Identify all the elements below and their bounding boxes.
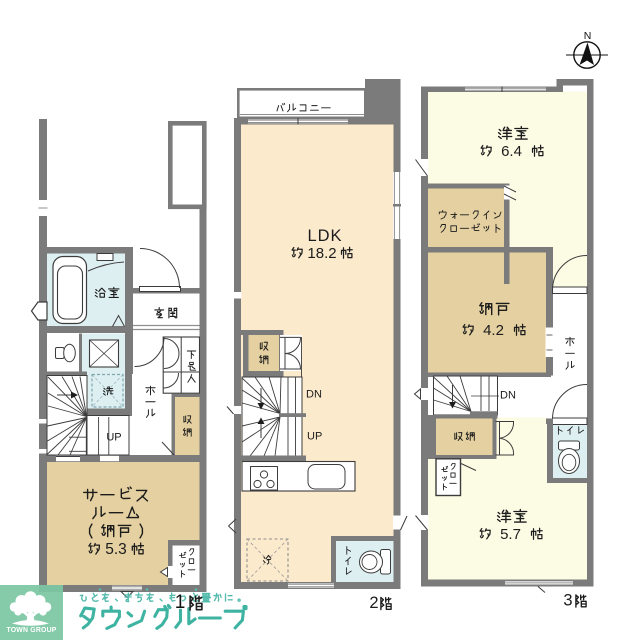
svg-text:TOWN GROUP: TOWN GROUP	[6, 627, 56, 634]
svg-text:5.7: 5.7	[500, 526, 521, 543]
svg-text:1: 1	[175, 592, 186, 613]
svg-text:2: 2	[369, 594, 378, 612]
svg-text:4.2: 4.2	[483, 322, 504, 339]
svg-text:UP: UP	[307, 431, 322, 443]
svg-text:5.3: 5.3	[105, 541, 127, 558]
svg-text:3: 3	[563, 592, 572, 610]
svg-text:DN: DN	[306, 389, 322, 401]
svg-text:6.4: 6.4	[501, 143, 522, 160]
svg-text:DN: DN	[500, 390, 516, 402]
svg-text:18.2: 18.2	[307, 245, 336, 262]
svg-text:LDK: LDK	[307, 227, 342, 245]
svg-text:UP: UP	[106, 432, 121, 444]
svg-text:N: N	[584, 30, 592, 42]
